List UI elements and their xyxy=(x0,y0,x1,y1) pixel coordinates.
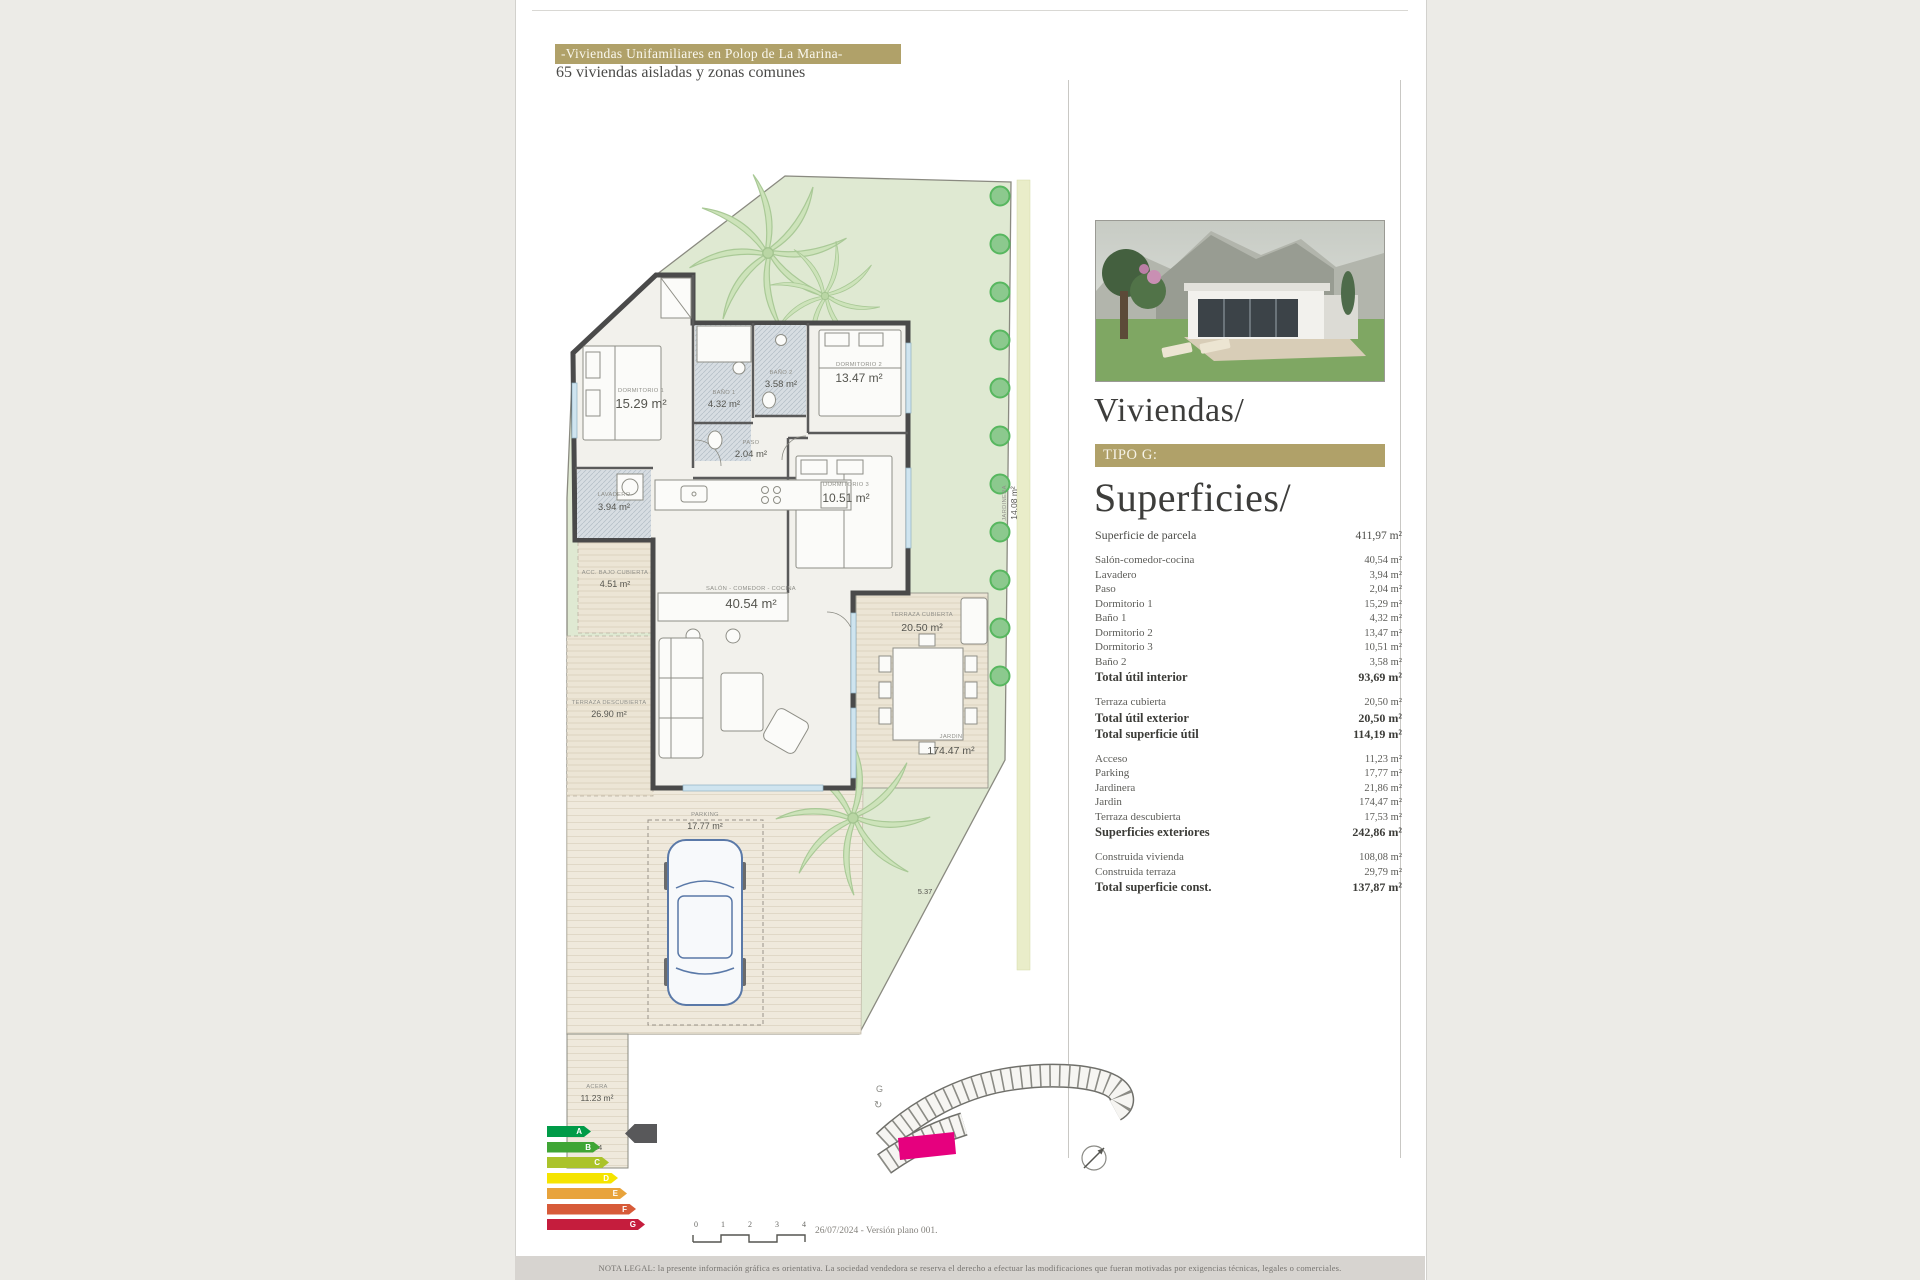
surface-label: Baño 2 xyxy=(1095,656,1126,668)
surface-value: 40,54 m² xyxy=(1364,555,1402,566)
energy-grade-bar: E xyxy=(547,1188,627,1199)
surface-value: 3,94 m² xyxy=(1370,570,1402,581)
room-label: DORMITORIO 2 xyxy=(836,362,882,368)
version-note: 26/07/2024 - Versión plano 001. xyxy=(815,1226,938,1236)
render-photo-image xyxy=(1096,221,1384,381)
surface-value: 21,86 m² xyxy=(1364,783,1402,794)
site-plan: G ↻ xyxy=(868,1036,1140,1184)
surface-label: Dormitorio 1 xyxy=(1095,598,1153,610)
surface-value: 2,04 m² xyxy=(1370,584,1402,595)
room-label: JARDIN xyxy=(940,734,963,740)
surface-row: Salón-comedor-cocina 40,54 m² xyxy=(1095,554,1402,569)
surface-label: Lavadero xyxy=(1095,569,1137,581)
surface-row: Dormitorio 2 13,47 m² xyxy=(1095,627,1402,642)
scale-tick: 3 xyxy=(775,1220,779,1229)
surface-label: Superficies exteriores xyxy=(1095,825,1210,840)
room-area: 4.32 m² xyxy=(708,399,740,410)
surface-label: Total útil exterior xyxy=(1095,711,1189,726)
project-title-band: -Viviendas Unifamiliares en Polop de La … xyxy=(555,44,901,64)
surface-label: Paso xyxy=(1095,583,1116,595)
surface-value: 108,08 m² xyxy=(1359,852,1402,863)
surface-value: 10,51 m² xyxy=(1364,642,1402,653)
room-area: 14.08 m² xyxy=(1009,486,1019,520)
surface-row: Dormitorio 1 15,29 m² xyxy=(1095,598,1402,613)
room-label: PARKING xyxy=(691,812,719,818)
surface-row: Superficies exteriores 242,86 m² xyxy=(1095,825,1402,841)
scale-tick: 1 xyxy=(721,1220,725,1229)
page-background: { "header": { "title": "-Viviendas Unifa… xyxy=(0,0,1920,1280)
room-area: 17.77 m² xyxy=(687,821,723,831)
surface-label: Total superficie útil xyxy=(1095,727,1199,742)
dimension-label: 5.37 xyxy=(918,887,933,896)
energy-grade-bar: F xyxy=(547,1204,636,1215)
surface-row: Total útil interior 93,69 m² xyxy=(1095,670,1402,686)
surface-row: Paso 2,04 m² xyxy=(1095,583,1402,598)
surface-value: 137,87 m² xyxy=(1352,880,1402,895)
room-label: ACC. BAJO CUBIERTA xyxy=(582,570,648,576)
surface-value: 15,29 m² xyxy=(1364,599,1402,610)
room-label: SALÓN - COMEDOR - COCINA xyxy=(706,585,796,592)
surface-value: 114,19 m² xyxy=(1353,727,1402,742)
car xyxy=(664,840,746,1005)
surface-row: Superficie de parcela 411,97 m² xyxy=(1095,528,1402,544)
surface-row: Terraza cubierta 20,50 m² xyxy=(1095,696,1402,711)
room-area: 2.04 m² xyxy=(735,449,767,460)
surface-label: Construida terraza xyxy=(1095,866,1176,878)
surface-row: Lavadero 3,94 m² xyxy=(1095,569,1402,584)
surface-label: Jardin xyxy=(1095,796,1122,808)
room-label: LAVADERO xyxy=(597,492,630,498)
room-area: 3.94 m² xyxy=(598,502,630,513)
surface-row: Construida terraza 29,79 m² xyxy=(1095,866,1402,881)
room-area: 174.47 m² xyxy=(927,745,975,757)
north-compass-icon xyxy=(1082,1146,1106,1170)
surface-value: 4,32 m² xyxy=(1370,613,1402,624)
room-label: BAÑO 1 xyxy=(712,389,735,396)
surface-value: 13,47 m² xyxy=(1364,628,1402,639)
superficies-heading: Superficies/ xyxy=(1094,474,1291,521)
room-area: 40.54 m² xyxy=(725,596,777,611)
energy-grade-letter: A xyxy=(576,1126,582,1137)
energy-grade-letter: F xyxy=(622,1204,627,1215)
energy-grade-bar: D xyxy=(547,1173,618,1184)
legal-strip: NOTA LEGAL: la presente información gráf… xyxy=(515,1256,1425,1280)
rotate-icon: ↻ xyxy=(874,1100,882,1111)
surface-row: Terraza descubierta 17,53 m² xyxy=(1095,811,1402,826)
surface-value: 93,69 m² xyxy=(1358,670,1402,685)
panel-divider xyxy=(1068,80,1069,1158)
surface-value: 17,77 m² xyxy=(1364,768,1402,779)
render-photo xyxy=(1095,220,1385,382)
energy-grade-bar: C xyxy=(547,1157,609,1168)
room-label: PASO xyxy=(743,440,760,446)
room-area: 26.90 m² xyxy=(591,709,627,719)
energy-grade-letter: G xyxy=(630,1219,636,1230)
room-label: DORMITORIO 3 xyxy=(823,482,869,488)
surface-row: Construida vivienda 108,08 m² xyxy=(1095,851,1402,866)
scale-bar-ticks: 01234 xyxy=(694,1220,806,1229)
surface-row: Jardin 174,47 m² xyxy=(1095,796,1402,811)
room-label: JARDINERA xyxy=(1002,485,1008,521)
surface-row: Total superficie const. 137,87 m² xyxy=(1095,880,1402,896)
room-label: TERRAZA CUBIERTA xyxy=(891,612,953,618)
room-label: TERRAZA DESCUBIERTA xyxy=(572,700,647,706)
room-area: 3.58 m² xyxy=(765,379,797,390)
energy-grade-bar: B xyxy=(547,1142,600,1153)
scale-tick: 4 xyxy=(802,1220,806,1229)
room-area: 13.47 m² xyxy=(835,371,882,385)
surface-label: Dormitorio 3 xyxy=(1095,641,1153,653)
surface-row: Total útil exterior 20,50 m² xyxy=(1095,711,1402,727)
surface-label: Parking xyxy=(1095,767,1129,779)
surface-label: Superficie de parcela xyxy=(1095,528,1196,543)
surface-label: Jardinera xyxy=(1095,782,1135,794)
surface-label: Dormitorio 2 xyxy=(1095,627,1153,639)
energy-grade-letter: D xyxy=(603,1173,609,1184)
scale-tick: 0 xyxy=(694,1220,698,1229)
surface-value: 20,50 m² xyxy=(1364,697,1402,708)
surface-row: Total superficie útil 114,19 m² xyxy=(1095,727,1402,743)
scale-bar xyxy=(692,1231,810,1247)
energy-grade-bar: G xyxy=(547,1219,645,1230)
floor-plan: DORMITORIO 1 15.29 m² BAÑO 1 4.32 m² BAÑ… xyxy=(553,168,1038,1173)
room-label: ACERA xyxy=(586,1084,607,1090)
surface-value: 242,86 m² xyxy=(1352,825,1402,840)
surface-label: Baño 1 xyxy=(1095,612,1126,624)
energy-rating-label: A B C D E F G xyxy=(547,1126,697,1235)
energy-grade-letter: B xyxy=(585,1142,591,1153)
legal-text: NOTA LEGAL: la presente información gráf… xyxy=(598,1263,1341,1273)
scale-tick: 2 xyxy=(748,1220,752,1229)
neighbour-strip xyxy=(1017,180,1030,970)
plot-type-marker: G xyxy=(876,1084,883,1094)
surface-row: Dormitorio 3 10,51 m² xyxy=(1095,641,1402,656)
room-area: 11.23 m² xyxy=(581,1093,614,1103)
room-label: DORMITORIO 1 xyxy=(618,388,664,394)
surface-label: Total útil interior xyxy=(1095,670,1188,685)
panel-heading: Viviendas/ xyxy=(1094,392,1244,430)
surface-row: Parking 17,77 m² xyxy=(1095,767,1402,782)
project-subtitle: 65 viviendas aisladas y zonas comunes xyxy=(556,64,805,82)
energy-grade-bar: A xyxy=(547,1126,591,1137)
surface-label: Terraza cubierta xyxy=(1095,696,1166,708)
surface-row: Baño 2 3,58 m² xyxy=(1095,656,1402,671)
energy-grade-letter: C xyxy=(594,1157,600,1168)
surface-value: 29,79 m² xyxy=(1364,867,1402,878)
surface-value: 174,47 m² xyxy=(1359,797,1402,808)
surface-table: Superficie de parcela 411,97 m² Salón-co… xyxy=(1095,528,1402,896)
tipo-band: TIPO G: xyxy=(1095,444,1385,467)
surface-row: Jardinera 21,86 m² xyxy=(1095,782,1402,797)
surface-label: Construida vivienda xyxy=(1095,851,1184,863)
room-area: 10.51 m² xyxy=(822,491,869,505)
surface-value: 20,50 m² xyxy=(1358,711,1402,726)
surface-label: Terraza descubierta xyxy=(1095,811,1181,823)
surface-label: Total superficie const. xyxy=(1095,880,1212,895)
surface-row: Acceso 11,23 m² xyxy=(1095,753,1402,768)
surface-value: 3,58 m² xyxy=(1370,657,1402,668)
room-area: 20.50 m² xyxy=(901,622,943,634)
room-label: BAÑO 2 xyxy=(769,369,792,376)
surface-value: 411,97 m² xyxy=(1356,530,1402,542)
energy-grade-letter: E xyxy=(613,1188,618,1199)
surface-label: Acceso xyxy=(1095,753,1127,765)
top-rule xyxy=(532,10,1408,11)
room-area: 15.29 m² xyxy=(615,396,667,411)
surface-value: 11,23 m² xyxy=(1365,754,1402,765)
surface-label: Salón-comedor-cocina xyxy=(1095,554,1194,566)
surface-row: Baño 1 4,32 m² xyxy=(1095,612,1402,627)
room-area: 4.51 m² xyxy=(600,579,631,589)
surface-value: 17,53 m² xyxy=(1364,812,1402,823)
